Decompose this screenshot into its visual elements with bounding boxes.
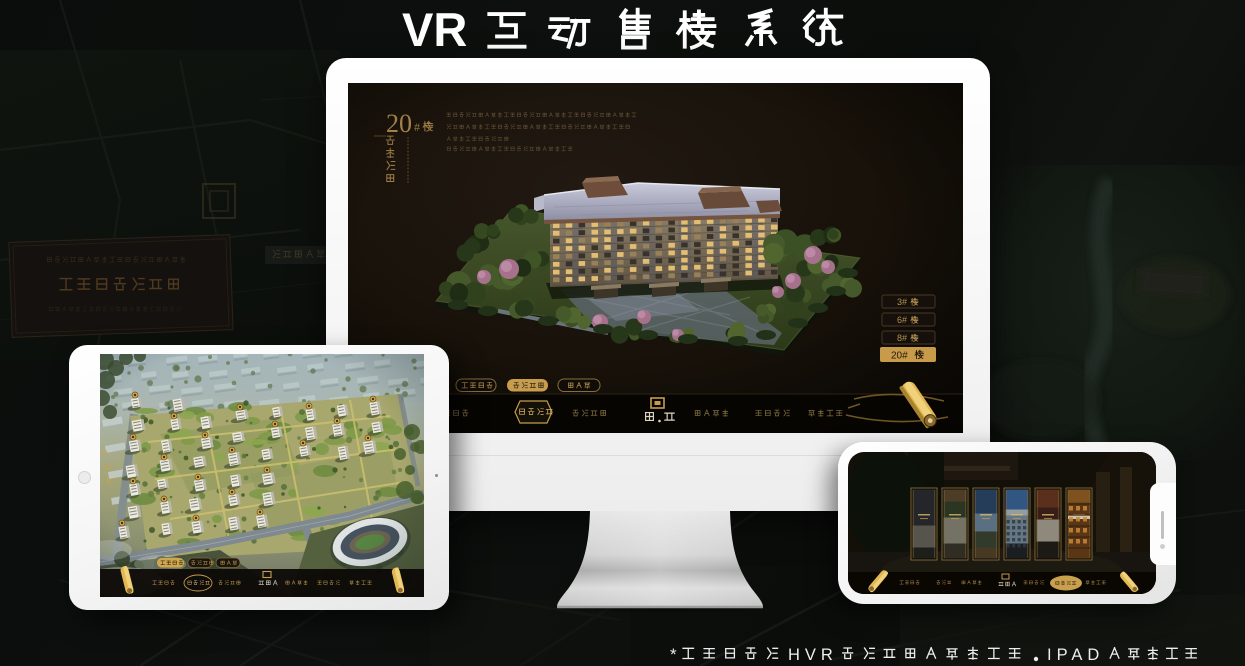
svg-text:IPAD: IPAD [1047, 646, 1104, 664]
svg-text:8#: 8# [897, 333, 907, 343]
svg-text:6#: 6# [897, 315, 907, 325]
svg-text:VR: VR [402, 3, 467, 56]
svg-text:*: * [670, 645, 677, 664]
svg-text:3#: 3# [897, 297, 907, 307]
svg-text:HVR: HVR [788, 646, 838, 664]
svg-text:20#: 20# [891, 351, 908, 362]
